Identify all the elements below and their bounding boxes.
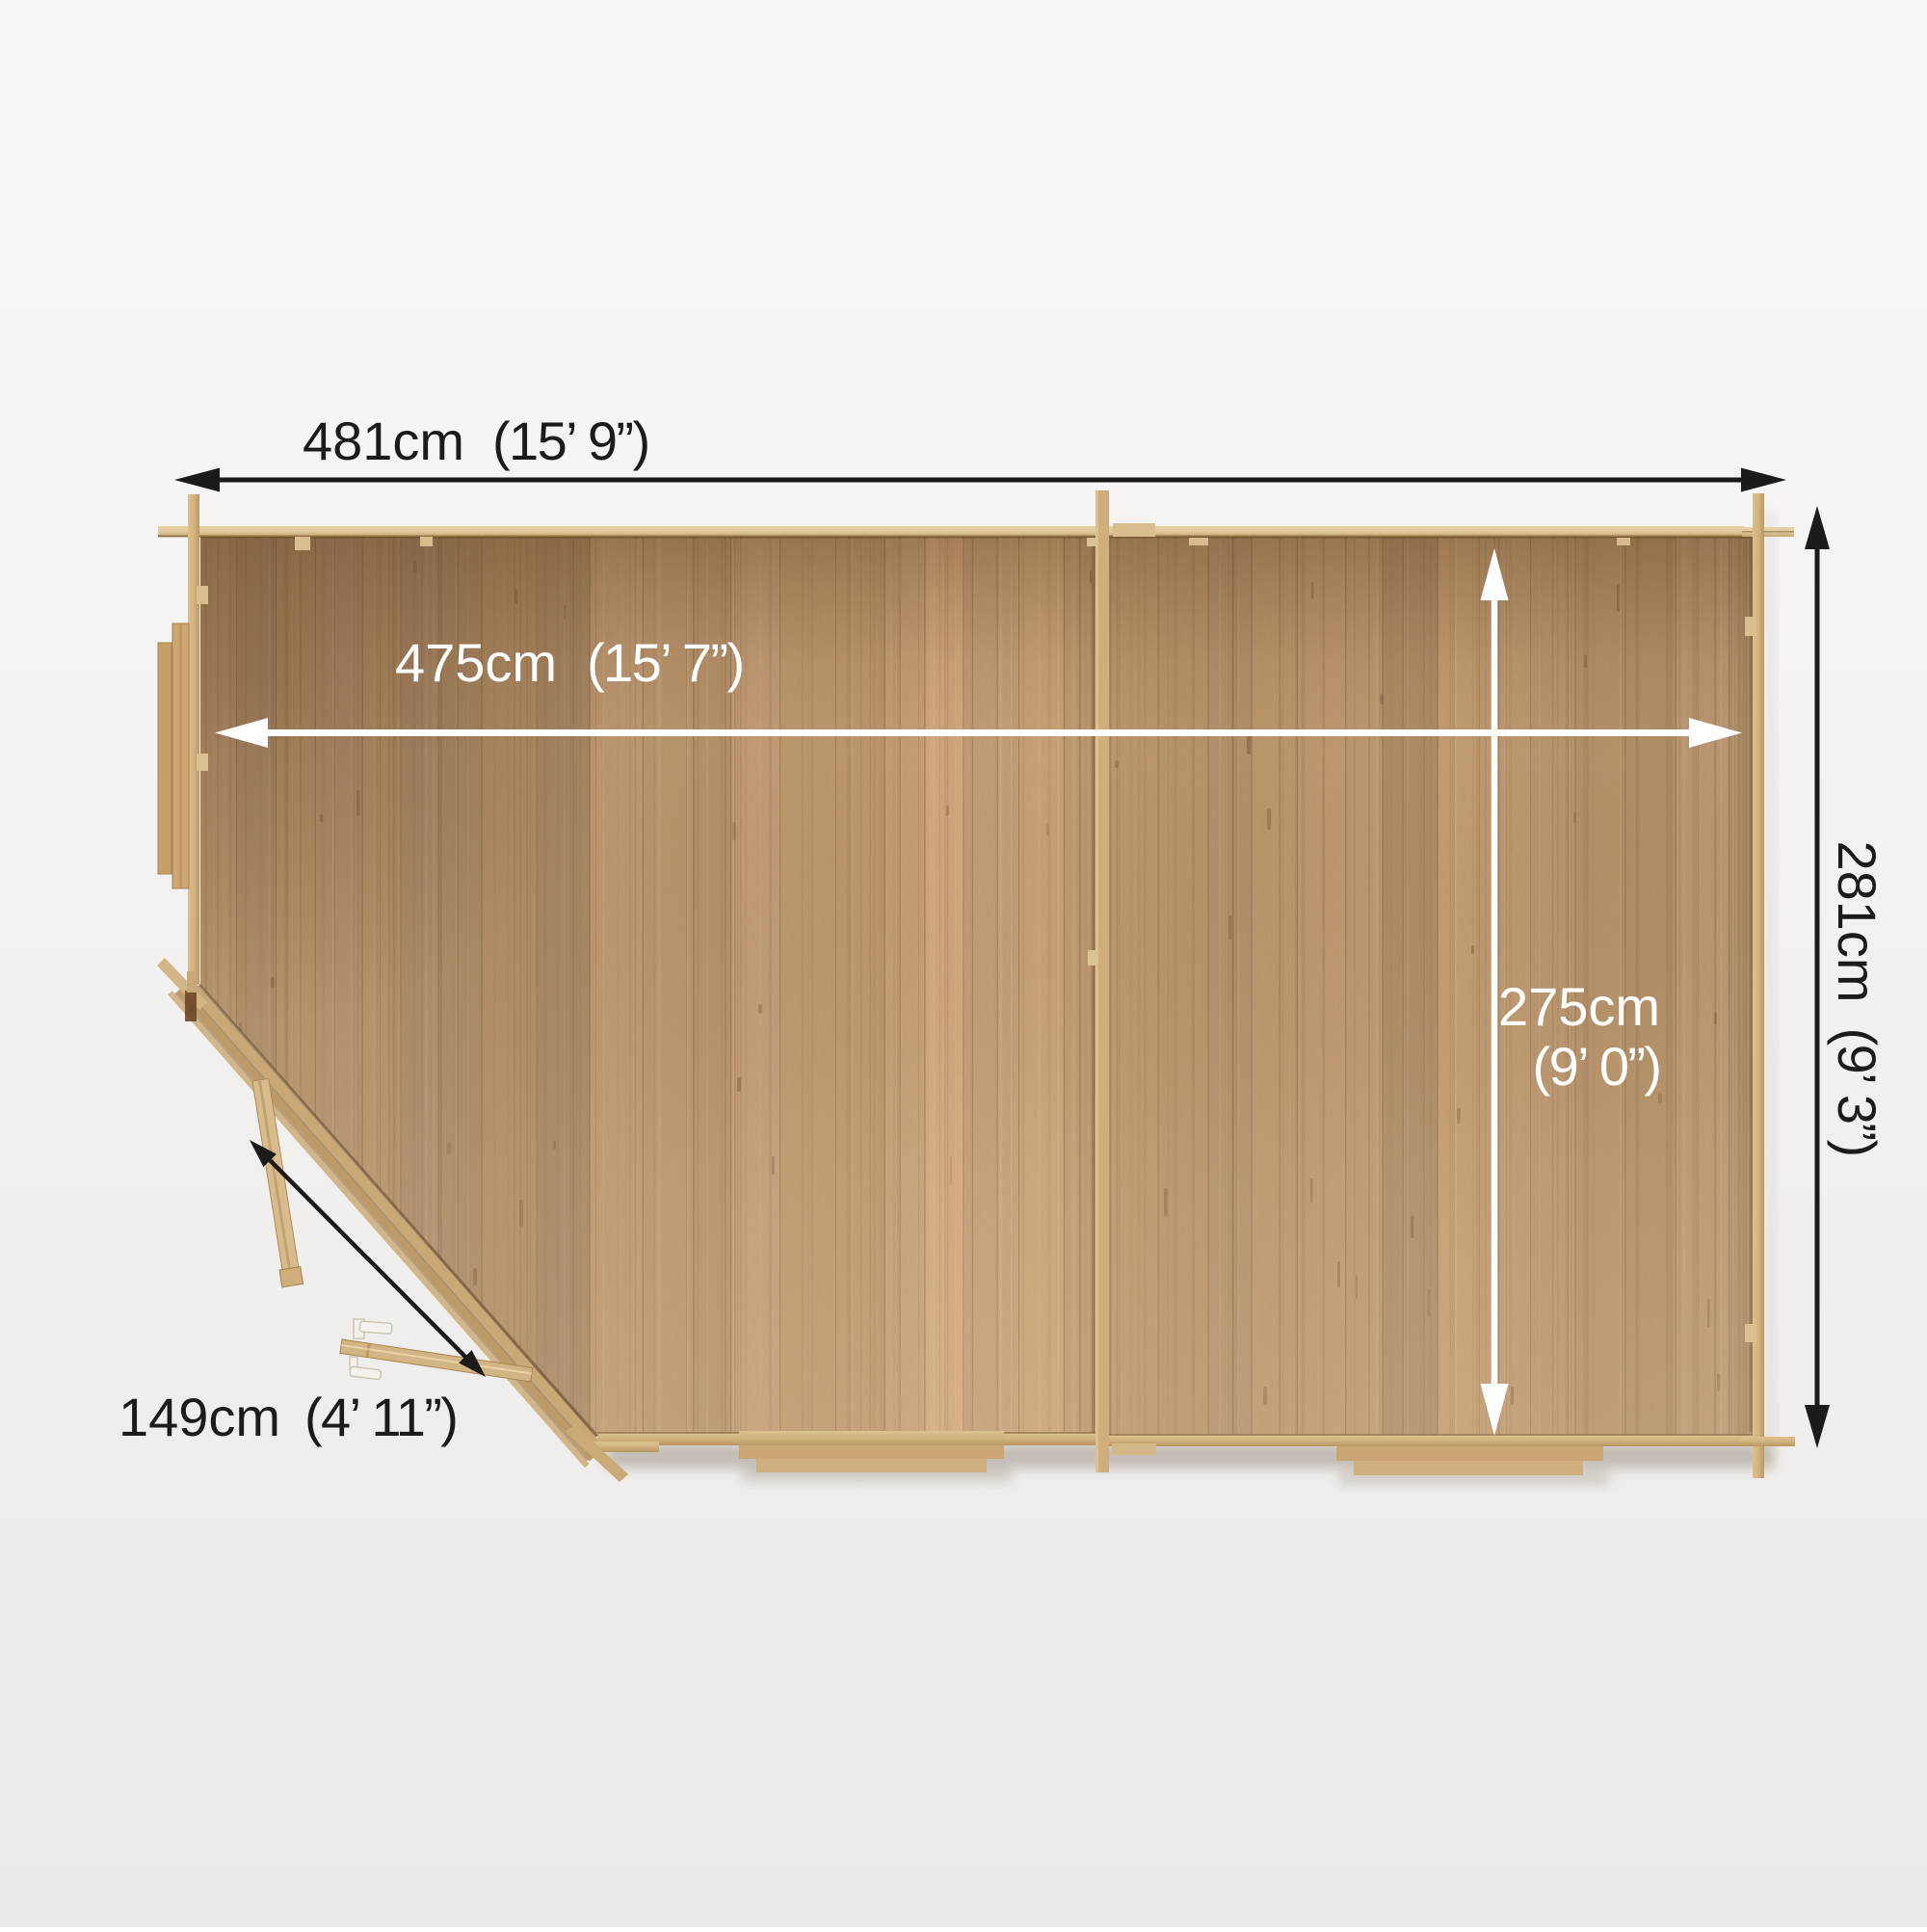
svg-text:281cm(9’ 3”): 281cm(9’ 3”): [1827, 840, 1887, 1155]
svg-text:(15’ 7”): (15’ 7”): [587, 632, 744, 693]
svg-text:(9’ 0”): (9’ 0”): [1533, 1036, 1661, 1097]
svg-text:475cm: 475cm: [395, 632, 557, 693]
svg-text:275cm: 275cm: [1498, 976, 1660, 1037]
svg-text:481cm: 481cm: [303, 410, 464, 471]
svg-text:(15’ 9”): (15’ 9”): [492, 410, 649, 471]
svg-text:149cm: 149cm: [119, 1387, 280, 1447]
svg-text:(4’ 11”): (4’ 11”): [304, 1387, 457, 1447]
